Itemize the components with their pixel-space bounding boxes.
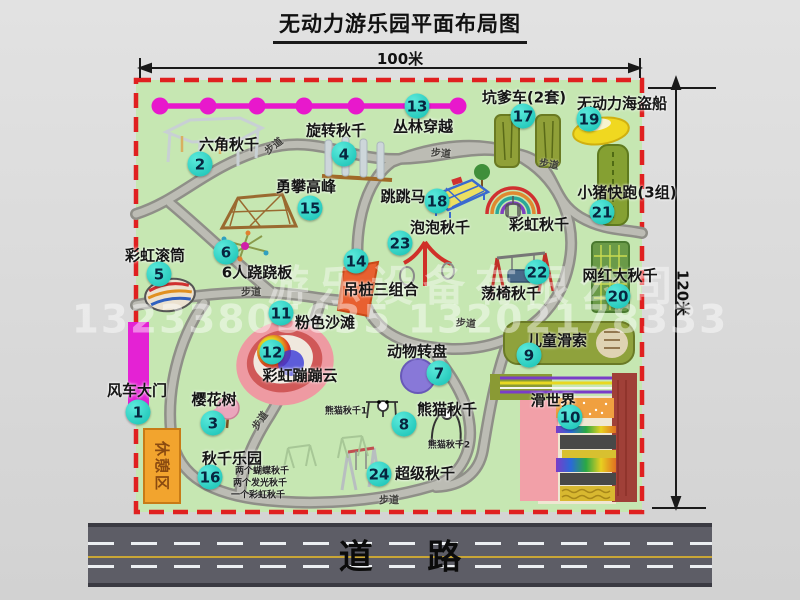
- rainbow-cloud-core2: [278, 350, 304, 376]
- road: 道路: [88, 523, 712, 587]
- rest-area: 休憩区: [143, 428, 181, 504]
- rest-area-label: 休憩区: [152, 440, 173, 491]
- piggy-run-icon: [598, 145, 628, 225]
- page-title: 无动力游乐园平面布局图: [273, 8, 527, 44]
- watermark-phone: 13233805635 13202178333: [72, 298, 729, 343]
- playground-plan-map: 无动力游乐园平面布局图 100米 120米 休憩区 游乐设备有限公司 13233…: [0, 0, 800, 600]
- road-label: 道路: [284, 530, 515, 579]
- animal-carousel-icon: [401, 359, 435, 393]
- dimension-width-label: 100米: [377, 48, 423, 69]
